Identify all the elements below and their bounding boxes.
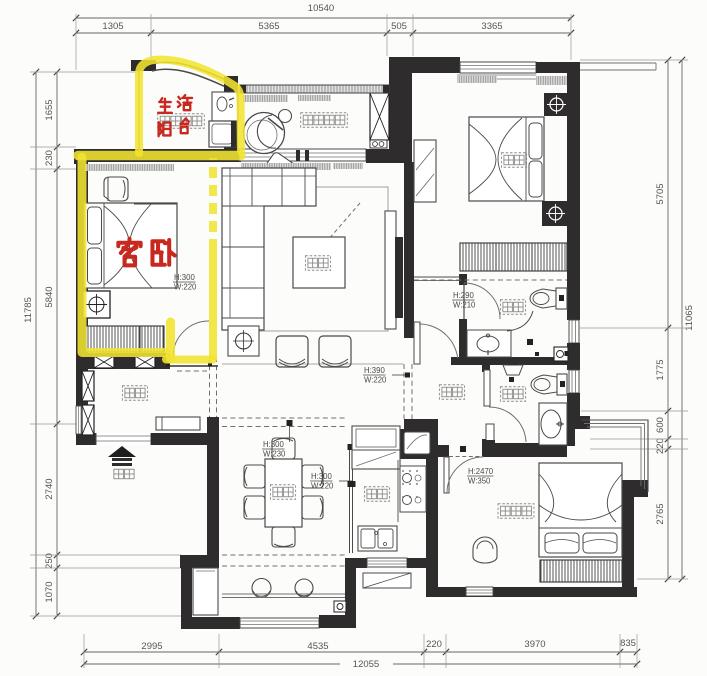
svg-text:5840: 5840 xyxy=(44,286,55,307)
svg-text:W:220: W:220 xyxy=(311,482,334,491)
svg-text:3970: 3970 xyxy=(524,639,545,650)
svg-text:2765: 2765 xyxy=(655,503,666,524)
svg-text:600: 600 xyxy=(655,417,666,433)
svg-text:1305: 1305 xyxy=(102,21,123,32)
svg-text:1070: 1070 xyxy=(44,581,55,602)
svg-text:12055: 12055 xyxy=(353,659,379,670)
svg-text:H:300: H:300 xyxy=(311,472,332,481)
svg-text:2740: 2740 xyxy=(44,478,55,499)
svg-text:H:300: H:300 xyxy=(174,273,195,282)
svg-text:11065: 11065 xyxy=(684,305,695,331)
svg-text:4535: 4535 xyxy=(307,641,328,652)
svg-text:250: 250 xyxy=(44,553,55,569)
svg-text:H:2470: H:2470 xyxy=(468,467,494,476)
svg-text:2995: 2995 xyxy=(141,641,162,652)
svg-text:5705: 5705 xyxy=(655,183,666,204)
svg-text:220: 220 xyxy=(655,438,666,454)
svg-text:W:220: W:220 xyxy=(174,283,197,292)
svg-text:W:230: W:230 xyxy=(263,450,286,459)
svg-text:W:220: W:220 xyxy=(364,376,387,385)
svg-text:1775: 1775 xyxy=(655,359,666,380)
svg-text:10540: 10540 xyxy=(308,3,334,14)
svg-text:W:350: W:350 xyxy=(468,477,491,486)
svg-text:220: 220 xyxy=(426,639,442,650)
svg-text:5365: 5365 xyxy=(258,21,279,32)
svg-text:H:390: H:390 xyxy=(364,366,385,375)
svg-text:835: 835 xyxy=(620,638,636,649)
svg-text:3365: 3365 xyxy=(481,21,502,32)
svg-text:H:290: H:290 xyxy=(453,291,474,300)
svg-text:W:210: W:210 xyxy=(453,301,476,310)
svg-text:H:300: H:300 xyxy=(263,440,284,449)
svg-text:505: 505 xyxy=(391,21,407,32)
svg-text:11785: 11785 xyxy=(23,297,34,323)
svg-text:1655: 1655 xyxy=(44,99,55,120)
svg-text:230: 230 xyxy=(44,150,55,166)
